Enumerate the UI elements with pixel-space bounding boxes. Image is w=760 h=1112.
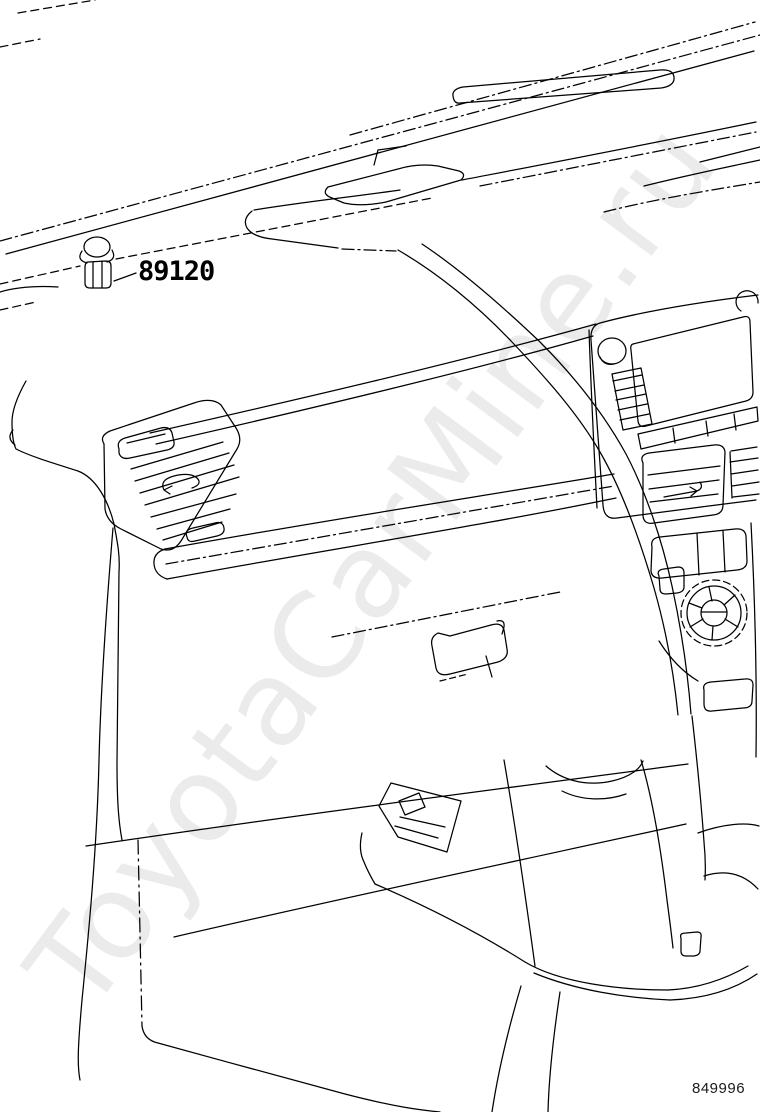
parts-diagram: ToyotaCarMine.ru [0, 0, 760, 1112]
instrument-panel-pad [150, 324, 596, 444]
dash-top-tray [325, 165, 463, 205]
part-number-callout[interactable]: 89120 [138, 258, 214, 285]
center-air-vents [642, 445, 759, 523]
leader-line [114, 273, 136, 281]
dashboard-line-art [0, 0, 760, 1112]
shift-pod [379, 783, 461, 852]
sensor-clip-part [0, 198, 432, 288]
lower-console [360, 716, 759, 1112]
glove-box-handle [432, 624, 508, 675]
glove-box [86, 592, 688, 937]
figure-number: 849996 [692, 1080, 745, 1097]
left-air-vent [102, 400, 239, 550]
meter-hood-pillar [245, 122, 756, 715]
console-clip [681, 932, 702, 956]
left-silhouette [0, 287, 440, 1112]
tune-knob [736, 291, 758, 311]
cowl-lines [0, 0, 760, 254]
navigation-unit [589, 291, 758, 518]
